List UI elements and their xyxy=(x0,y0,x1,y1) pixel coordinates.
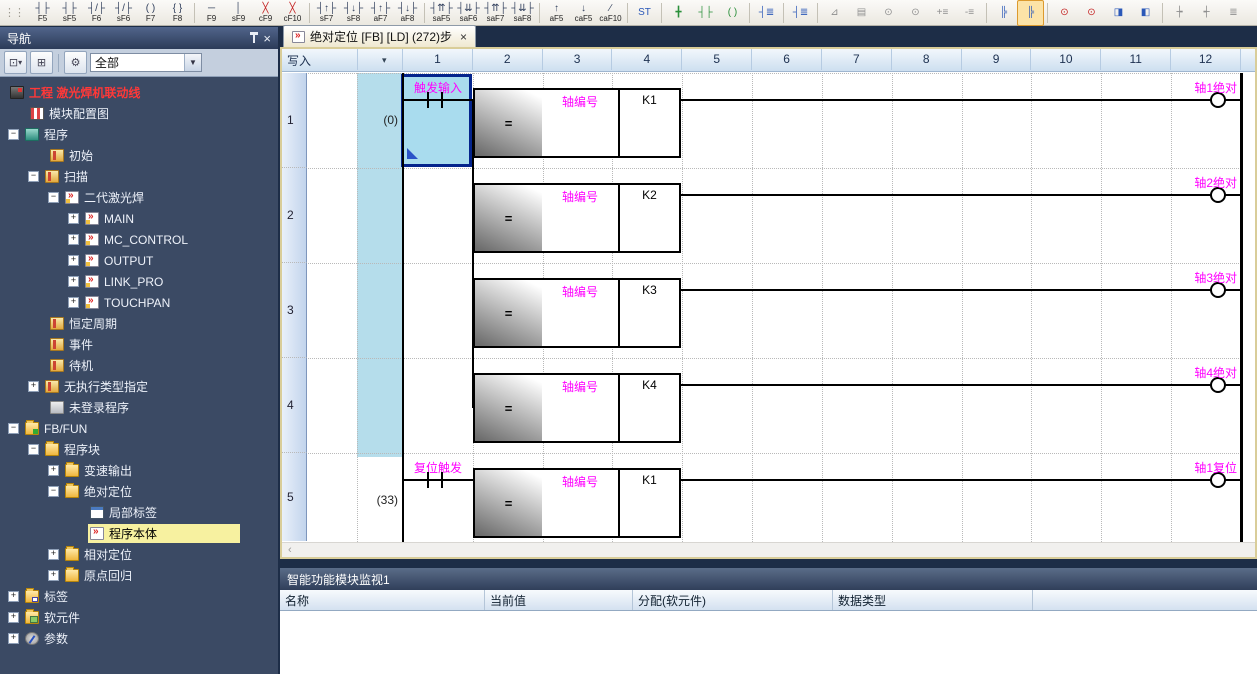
pou-icon xyxy=(85,275,99,288)
monitor-table-header: 名称当前值分配(软元件)数据类型 xyxy=(280,590,1257,611)
horizontal-scrollbar[interactable]: ‹ xyxy=(282,542,1255,557)
contact-symbol[interactable] xyxy=(441,92,443,108)
block-value-cell[interactable]: K2 xyxy=(618,185,679,251)
tree-item[interactable]: 恒定周期 xyxy=(0,313,278,334)
close-icon[interactable]: × xyxy=(263,32,271,45)
block-value: K1 xyxy=(620,93,679,107)
block-operator: = xyxy=(475,185,542,251)
file-icon xyxy=(50,317,64,330)
tree-item-label: 工程 激光焊机联动线 xyxy=(29,84,140,101)
output-wire xyxy=(681,289,1241,291)
expand-box-icon[interactable]: + xyxy=(68,213,79,224)
tree-item[interactable]: −扫描 xyxy=(0,166,278,187)
rising-edge-operation-icon[interactable]: ↑aF5 xyxy=(543,0,570,26)
tree-item-label: MAIN xyxy=(104,212,134,226)
tree-item-label: 待机 xyxy=(69,357,93,374)
expand-box-icon[interactable]: + xyxy=(48,570,59,581)
tree-item[interactable]: +软元件 xyxy=(0,607,278,628)
closed-contact-icon[interactable]: ┤/├F6 xyxy=(83,0,110,26)
tree-item[interactable]: +参数 xyxy=(0,628,278,649)
tab-ladder-editor[interactable]: 绝对定位 [FB] [LD] (272)步 × xyxy=(283,25,476,47)
header-separator xyxy=(357,49,358,70)
edit-contact-mode-icon[interactable]: ┤├ xyxy=(692,0,719,26)
toolbar-grip[interactable]: ⋮⋮ xyxy=(4,6,24,19)
contact-wire xyxy=(403,99,473,101)
toolbar-separator xyxy=(1047,3,1048,23)
monitor-titlebar: 智能功能模块监视1 xyxy=(280,568,1257,590)
chevron-down-icon[interactable]: ▼ xyxy=(184,54,201,71)
fbfun-icon xyxy=(25,422,39,435)
device-skip-left-icon[interactable]: ┾ xyxy=(1166,0,1193,26)
monitor-column-filler xyxy=(1033,590,1257,610)
tree-item-label: TOUCHPAN xyxy=(104,296,170,310)
prog-icon xyxy=(25,128,39,141)
tree-item-label: 程序本体 xyxy=(109,525,157,542)
expand-box-icon[interactable]: + xyxy=(68,297,79,308)
tree-item[interactable]: 待机 xyxy=(0,355,278,376)
toolbar-separator xyxy=(194,3,195,23)
column-header-10: 10 xyxy=(1030,49,1100,70)
horizontal-line-icon[interactable]: ─F9 xyxy=(198,0,225,26)
insert-statement-icon[interactable]: +≡ xyxy=(929,0,956,26)
edit-cursor-triangle-icon xyxy=(407,148,418,159)
file-icon xyxy=(50,338,64,351)
tree-item[interactable]: +相对定位 xyxy=(0,544,278,565)
device-comment-edit-icon[interactable]: ┤≣ xyxy=(753,0,780,26)
coil-label: 轴3绝对 xyxy=(1097,269,1237,286)
rung-row-number[interactable]: 1 xyxy=(282,73,307,168)
editor-tabbar: 绝对定位 [FB] [LD] (272)步 × xyxy=(280,26,1257,47)
edit-line-mode-icon[interactable]: ╋ xyxy=(665,0,692,26)
monitor-column-1[interactable]: 当前值 xyxy=(485,590,633,610)
block-value-cell[interactable]: K3 xyxy=(618,280,679,346)
parallel-open-contact-icon[interactable]: ┤├sF5 xyxy=(56,0,83,26)
block-param-label: 轴编号 xyxy=(542,283,618,300)
project-icon xyxy=(10,86,24,99)
block-param-label: 轴编号 xyxy=(542,93,618,110)
delete-statement-icon[interactable]: -≡ xyxy=(956,0,983,26)
coil-label: 轴2绝对 xyxy=(1097,174,1237,191)
function-block[interactable]: =轴编号K4 xyxy=(473,373,681,443)
settings-gear-icon[interactable]: ⚙ xyxy=(64,51,87,74)
toolbar-separator xyxy=(627,3,628,23)
grid-line xyxy=(682,73,683,542)
tab-title: 绝对定位 [FB] [LD] (272)步 xyxy=(310,28,452,45)
toolbar-separator xyxy=(817,3,818,23)
block-param-cell[interactable]: 轴编号 xyxy=(542,90,618,156)
column-header-7: 7 xyxy=(821,49,891,70)
tree-item[interactable]: +MC_CONTROL xyxy=(0,229,278,250)
file-icon xyxy=(45,380,59,393)
tree-item[interactable]: −程序 xyxy=(0,124,278,145)
navigation-title: 导航 xyxy=(7,30,31,47)
rung-step-number: (0) xyxy=(342,113,398,127)
block-param-label: 轴编号 xyxy=(542,473,618,490)
column-header-3: 3 xyxy=(542,49,612,70)
expand-box-icon[interactable]: + xyxy=(48,549,59,560)
grid-line xyxy=(752,73,753,542)
grayfile-icon xyxy=(50,401,64,414)
contact-wire xyxy=(403,479,473,481)
monitor-edit-icon[interactable]: ⊙ xyxy=(1078,0,1105,26)
ladder-canvas[interactable]: 1(0)触发输入=轴编号K1轴1绝对2=轴编号K2轴2绝对3=轴编号K3轴3绝对… xyxy=(282,72,1255,542)
toolbar-separator xyxy=(986,3,987,23)
find-instruction-icon[interactable]: ⊙ xyxy=(902,0,929,26)
block-param-label: 轴编号 xyxy=(542,188,618,205)
parallel-falling-pulse-contact-icon[interactable]: ┤↓├aF8 xyxy=(394,0,421,26)
tree-item[interactable]: +TOUCHPAN xyxy=(0,292,278,313)
pou-icon xyxy=(85,212,99,225)
module-icon xyxy=(30,107,44,120)
output-wire xyxy=(681,384,1241,386)
file-icon xyxy=(45,170,59,183)
labelfolder-icon xyxy=(25,590,39,603)
coil-label: 轴4绝对 xyxy=(1097,364,1237,381)
contact-symbol[interactable] xyxy=(427,92,429,108)
tree-item[interactable]: 事件 xyxy=(0,334,278,355)
grid-line xyxy=(822,73,823,542)
rung-step-number: (33) xyxy=(342,493,398,507)
ladder-body-icon xyxy=(292,31,305,43)
branch-wire xyxy=(472,100,474,408)
column-header-5: 5 xyxy=(681,49,751,70)
block-value-cell[interactable]: K1 xyxy=(618,90,679,156)
tree-item[interactable]: 工程 激光焊机联动线 xyxy=(0,82,278,103)
block-operator: = xyxy=(475,470,542,536)
tree-item[interactable]: 局部标签 xyxy=(0,502,278,523)
block-param-cell[interactable]: 轴编号 xyxy=(542,470,618,536)
tree-item[interactable]: 初始 xyxy=(0,145,278,166)
device-skip-right-icon[interactable]: ┽ xyxy=(1193,0,1220,26)
tree-item[interactable]: 程序本体 xyxy=(0,523,278,544)
toolbar-separator xyxy=(749,3,750,23)
navigation-toolbar: ⊡▾ ⊞ ⚙ 全部 ▼ xyxy=(0,49,278,77)
device-batch-monitor-icon[interactable]: ◧ xyxy=(1132,0,1159,26)
contact-symbol[interactable] xyxy=(427,472,429,488)
tree-item[interactable]: +标签 xyxy=(0,586,278,607)
module-monitor-panel: 智能功能模块监视1 名称当前值分配(软元件)数据类型 xyxy=(280,568,1257,674)
scroll-left-icon[interactable]: ‹ xyxy=(288,544,292,556)
collapse-box-icon[interactable]: − xyxy=(48,192,59,203)
monitor-column-2[interactable]: 分配(软元件) xyxy=(633,590,833,610)
statement-edit-icon[interactable]: ⊿ xyxy=(821,0,848,26)
column-header-9: 9 xyxy=(961,49,1031,70)
column-header-8: 8 xyxy=(891,49,961,70)
output-wire xyxy=(681,194,1241,196)
block-value-cell[interactable]: K1 xyxy=(618,470,679,536)
rung-row-number[interactable]: 2 xyxy=(282,168,307,263)
monitor-column-3[interactable]: 数据类型 xyxy=(833,590,1033,610)
expand-box-icon[interactable]: + xyxy=(8,591,19,602)
tree-item-label: 初始 xyxy=(69,147,93,164)
tree-item[interactable]: 模块配置图 xyxy=(0,103,278,124)
parallel-rising-pulse-ne-icon[interactable]: ┤⇈├saF7 xyxy=(482,0,509,26)
tree-item-label: 恒定周期 xyxy=(69,315,117,332)
vertical-line-icon[interactable]: │sF9 xyxy=(225,0,252,26)
tree-item-label: 模块配置图 xyxy=(49,105,109,122)
collapse-box-icon[interactable]: − xyxy=(8,423,19,434)
tree-item[interactable]: −二代激光焊 xyxy=(0,187,278,208)
tree-item-label: MC_CONTROL xyxy=(104,233,188,247)
column-header-2: 2 xyxy=(472,49,542,70)
toolbar-separator xyxy=(783,3,784,23)
toolbar-items: ┤├F5┤├sF5┤/├F6┤/├sF6( )F7{ }F8─F9│sF9╳cF… xyxy=(29,0,1257,26)
expand-box-icon[interactable]: + xyxy=(68,255,79,266)
coil-icon[interactable]: ( )F7 xyxy=(137,0,164,26)
tree-item[interactable]: +变速输出 xyxy=(0,460,278,481)
ladder-block-list-icon[interactable]: ╠ xyxy=(990,0,1017,26)
tree-item-label: 标签 xyxy=(44,588,68,605)
column-header-4: 4 xyxy=(611,49,681,70)
function-block[interactable]: =轴编号K2 xyxy=(473,183,681,253)
delete-horizontal-line-icon[interactable]: ╳cF9 xyxy=(252,0,279,26)
tree-item[interactable]: +MAIN xyxy=(0,208,278,229)
block-param-label: 轴编号 xyxy=(542,378,618,395)
tree-item-label: 相对定位 xyxy=(84,546,132,563)
block-value: K1 xyxy=(620,473,679,487)
grid-line xyxy=(892,73,893,542)
grid-line xyxy=(962,73,963,542)
tree-item-label: 二代激光焊 xyxy=(84,189,144,206)
tree-item-label: LINK_PRO xyxy=(104,275,163,289)
tree-item[interactable]: +LINK_PRO xyxy=(0,271,278,292)
monitor-table-body[interactable] xyxy=(280,611,1257,674)
collapse-box-icon[interactable]: − xyxy=(28,171,39,182)
rising-pulse-contact-icon[interactable]: ┤↑├sF7 xyxy=(313,0,340,26)
tree-item[interactable]: −程序块 xyxy=(0,439,278,460)
tab-close-icon[interactable]: × xyxy=(460,30,467,44)
open-contact-icon[interactable]: ┤├F5 xyxy=(29,0,56,26)
block-param-cell[interactable]: 轴编号 xyxy=(542,375,618,441)
block-value: K3 xyxy=(620,283,679,297)
folder-icon xyxy=(65,548,79,561)
monitor-title: 智能功能模块监视1 xyxy=(287,571,390,588)
falling-pulse-contact-icon[interactable]: ┤↓├sF8 xyxy=(340,0,367,26)
tree-item[interactable]: +无执行类型指定 xyxy=(0,376,278,397)
tree-item-label: FB/FUN xyxy=(44,422,87,436)
tree-item-label: 程序 xyxy=(44,126,68,143)
block-operator: = xyxy=(475,280,542,346)
pin-icon[interactable] xyxy=(249,32,259,44)
tree-item-label: 原点回归 xyxy=(84,567,132,584)
main-toolbar: ⋮⋮ ┤├F5┤├sF5┤/├F6┤/├sF6( )F7{ }F8─F9│sF9… xyxy=(0,0,1257,26)
rising-pulse-ne-contact-icon[interactable]: ┤⇈├saF5 xyxy=(428,0,455,26)
filter-value: 全部 xyxy=(95,54,119,71)
block-param-cell[interactable]: 轴编号 xyxy=(542,280,618,346)
toolbar-separator xyxy=(539,3,540,23)
statement-strip xyxy=(357,73,402,457)
param-icon xyxy=(25,632,39,645)
ladder-editor-window: 写入 ▾ 123456789101112 1(0)触发输入=轴编号K1轴1绝对2… xyxy=(280,47,1257,559)
toolbar-separator xyxy=(309,3,310,23)
collapse-box-icon[interactable]: − xyxy=(28,444,39,455)
tree-item[interactable]: 未登录程序 xyxy=(0,397,278,418)
block-operator: = xyxy=(475,375,542,441)
expand-box-icon[interactable]: + xyxy=(68,234,79,245)
filter-combobox[interactable]: 全部 ▼ xyxy=(90,53,202,72)
navigation-titlebar: 导航 × xyxy=(0,27,278,49)
edit-coil-mode-icon[interactable]: ( ) xyxy=(719,0,746,26)
rung-row-number[interactable]: 5 xyxy=(282,453,307,541)
find-device-icon[interactable]: ⊙ xyxy=(875,0,902,26)
pou-icon xyxy=(65,191,79,204)
tree-item-label: 未登录程序 xyxy=(69,399,129,416)
device-display-icon[interactable]: ◨ xyxy=(1105,0,1132,26)
rung-row-number[interactable]: 3 xyxy=(282,263,307,358)
column-header-6: 6 xyxy=(751,49,821,70)
align-list-icon[interactable]: ≣ xyxy=(1220,0,1247,26)
expand-box-icon[interactable]: + xyxy=(48,465,59,476)
inline-st-box-icon[interactable]: ST xyxy=(631,0,658,26)
expand-box-icon[interactable]: + xyxy=(8,612,19,623)
collapse-box-icon[interactable]: − xyxy=(48,486,59,497)
mode-dropdown-icon[interactable]: ▾ xyxy=(382,49,387,71)
function-block[interactable]: =轴编号K1 xyxy=(473,88,681,158)
coil-label: 轴1绝对 xyxy=(1097,79,1237,96)
note-edit-icon[interactable]: ▤ xyxy=(848,0,875,26)
collapse-box-icon[interactable]: − xyxy=(8,129,19,140)
column-header-11: 11 xyxy=(1100,49,1170,70)
tree-item-label: 软元件 xyxy=(44,609,80,626)
application-instruction-icon[interactable]: { }F8 xyxy=(164,0,191,26)
navigation-panel: 导航 × ⊡▾ ⊞ ⚙ 全部 ▼ 工程 激光焊机联动线模块配置图−程序初始−扫描… xyxy=(0,27,278,674)
tree-item-label: 事件 xyxy=(69,336,93,353)
folder-icon xyxy=(45,443,59,456)
block-value-cell[interactable]: K4 xyxy=(618,375,679,441)
tree-item[interactable]: +原点回归 xyxy=(0,565,278,586)
tree-item-label: 扫描 xyxy=(64,168,88,185)
tree-item-label: 无执行类型指定 xyxy=(64,378,148,395)
monitor-find-icon[interactable]: ⊙ xyxy=(1051,0,1078,26)
block-value: K2 xyxy=(620,188,679,202)
pou-icon xyxy=(85,233,99,246)
delete-vertical-line-icon[interactable]: ╳cF10 xyxy=(279,0,306,26)
grid-line xyxy=(1031,73,1032,542)
folder-icon xyxy=(65,569,79,582)
output-wire xyxy=(681,99,1241,101)
tree-item-label: 变速输出 xyxy=(84,462,132,479)
column-header-12: 12 xyxy=(1170,49,1240,70)
file-icon xyxy=(50,359,64,372)
tree-collapse-button[interactable]: ⊞ xyxy=(30,51,53,74)
ladder-edit-mode-icon[interactable]: ╠ xyxy=(1017,0,1044,26)
output-wire xyxy=(681,479,1241,481)
monitor-column-0[interactable]: 名称 xyxy=(280,590,485,610)
rung-row-number[interactable]: 4 xyxy=(282,358,307,453)
editor-mode-label: 写入 xyxy=(287,52,311,69)
application-window: ⋮⋮ ┤├F5┤├sF5┤/├F6┤/├sF6( )F7{ }F8─F9│sF9… xyxy=(0,0,1257,674)
tree-item-label: 程序块 xyxy=(64,441,100,458)
expand-box-icon[interactable]: + xyxy=(28,381,39,392)
align-list-2-icon[interactable]: ≡ xyxy=(1247,0,1257,26)
expand-box-icon[interactable]: + xyxy=(68,276,79,287)
pou-icon xyxy=(85,254,99,267)
tree-item[interactable]: +OUTPUT xyxy=(0,250,278,271)
device-comment-batch-icon[interactable]: ┤≣ xyxy=(787,0,814,26)
pou-icon xyxy=(85,296,99,309)
parallel-rising-pulse-contact-icon[interactable]: ┤↑├aF7 xyxy=(367,0,394,26)
folder-icon xyxy=(65,464,79,477)
coil-label: 轴1复位 xyxy=(1097,459,1237,476)
parallel-falling-pulse-ne-icon[interactable]: ┤⇊├saF8 xyxy=(509,0,536,26)
body-icon xyxy=(90,527,104,540)
header-separator xyxy=(1240,49,1241,70)
ladder-column-header: 写入 ▾ 123456789101112 xyxy=(282,49,1255,72)
block-value: K4 xyxy=(620,378,679,392)
tree-item[interactable]: −绝对定位 xyxy=(0,481,278,502)
folder-icon xyxy=(65,485,79,498)
toolbar-separator xyxy=(424,3,425,23)
column-header-1: 1 xyxy=(402,49,472,70)
tree-view-options-button[interactable]: ⊡▾ xyxy=(4,51,27,74)
block-param-cell[interactable]: 轴编号 xyxy=(542,185,618,251)
file-icon xyxy=(50,149,64,162)
expand-box-icon[interactable]: + xyxy=(8,633,19,644)
falling-pulse-ne-contact-icon[interactable]: ┤⇊├saF6 xyxy=(455,0,482,26)
labeltable-icon xyxy=(90,506,104,519)
block-operator: = xyxy=(475,90,542,156)
tree-item-label: 参数 xyxy=(44,630,68,647)
tree-item-label: 局部标签 xyxy=(109,504,157,521)
toolbar-separator xyxy=(1162,3,1163,23)
function-block[interactable]: =轴编号K3 xyxy=(473,278,681,348)
right-power-rail xyxy=(1240,73,1243,542)
parallel-closed-contact-icon[interactable]: ┤/├sF6 xyxy=(110,0,137,26)
tree-item-label: 绝对定位 xyxy=(84,483,132,500)
project-tree: 工程 激光焊机联动线模块配置图−程序初始−扫描−二代激光焊+MAIN+MC_CO… xyxy=(0,77,278,674)
grid-line xyxy=(357,73,358,542)
falling-edge-operation-icon[interactable]: ↓caF5 xyxy=(570,0,597,26)
tree-item-label: OUTPUT xyxy=(104,254,153,268)
invert-operation-icon[interactable]: ∕caF10 xyxy=(597,0,624,26)
tree-item[interactable]: −FB/FUN xyxy=(0,418,278,439)
contact-symbol[interactable] xyxy=(441,472,443,488)
function-block[interactable]: =轴编号K1 xyxy=(473,468,681,538)
device-icon xyxy=(25,611,39,624)
toolbar-separator xyxy=(661,3,662,23)
left-power-rail xyxy=(402,73,404,542)
